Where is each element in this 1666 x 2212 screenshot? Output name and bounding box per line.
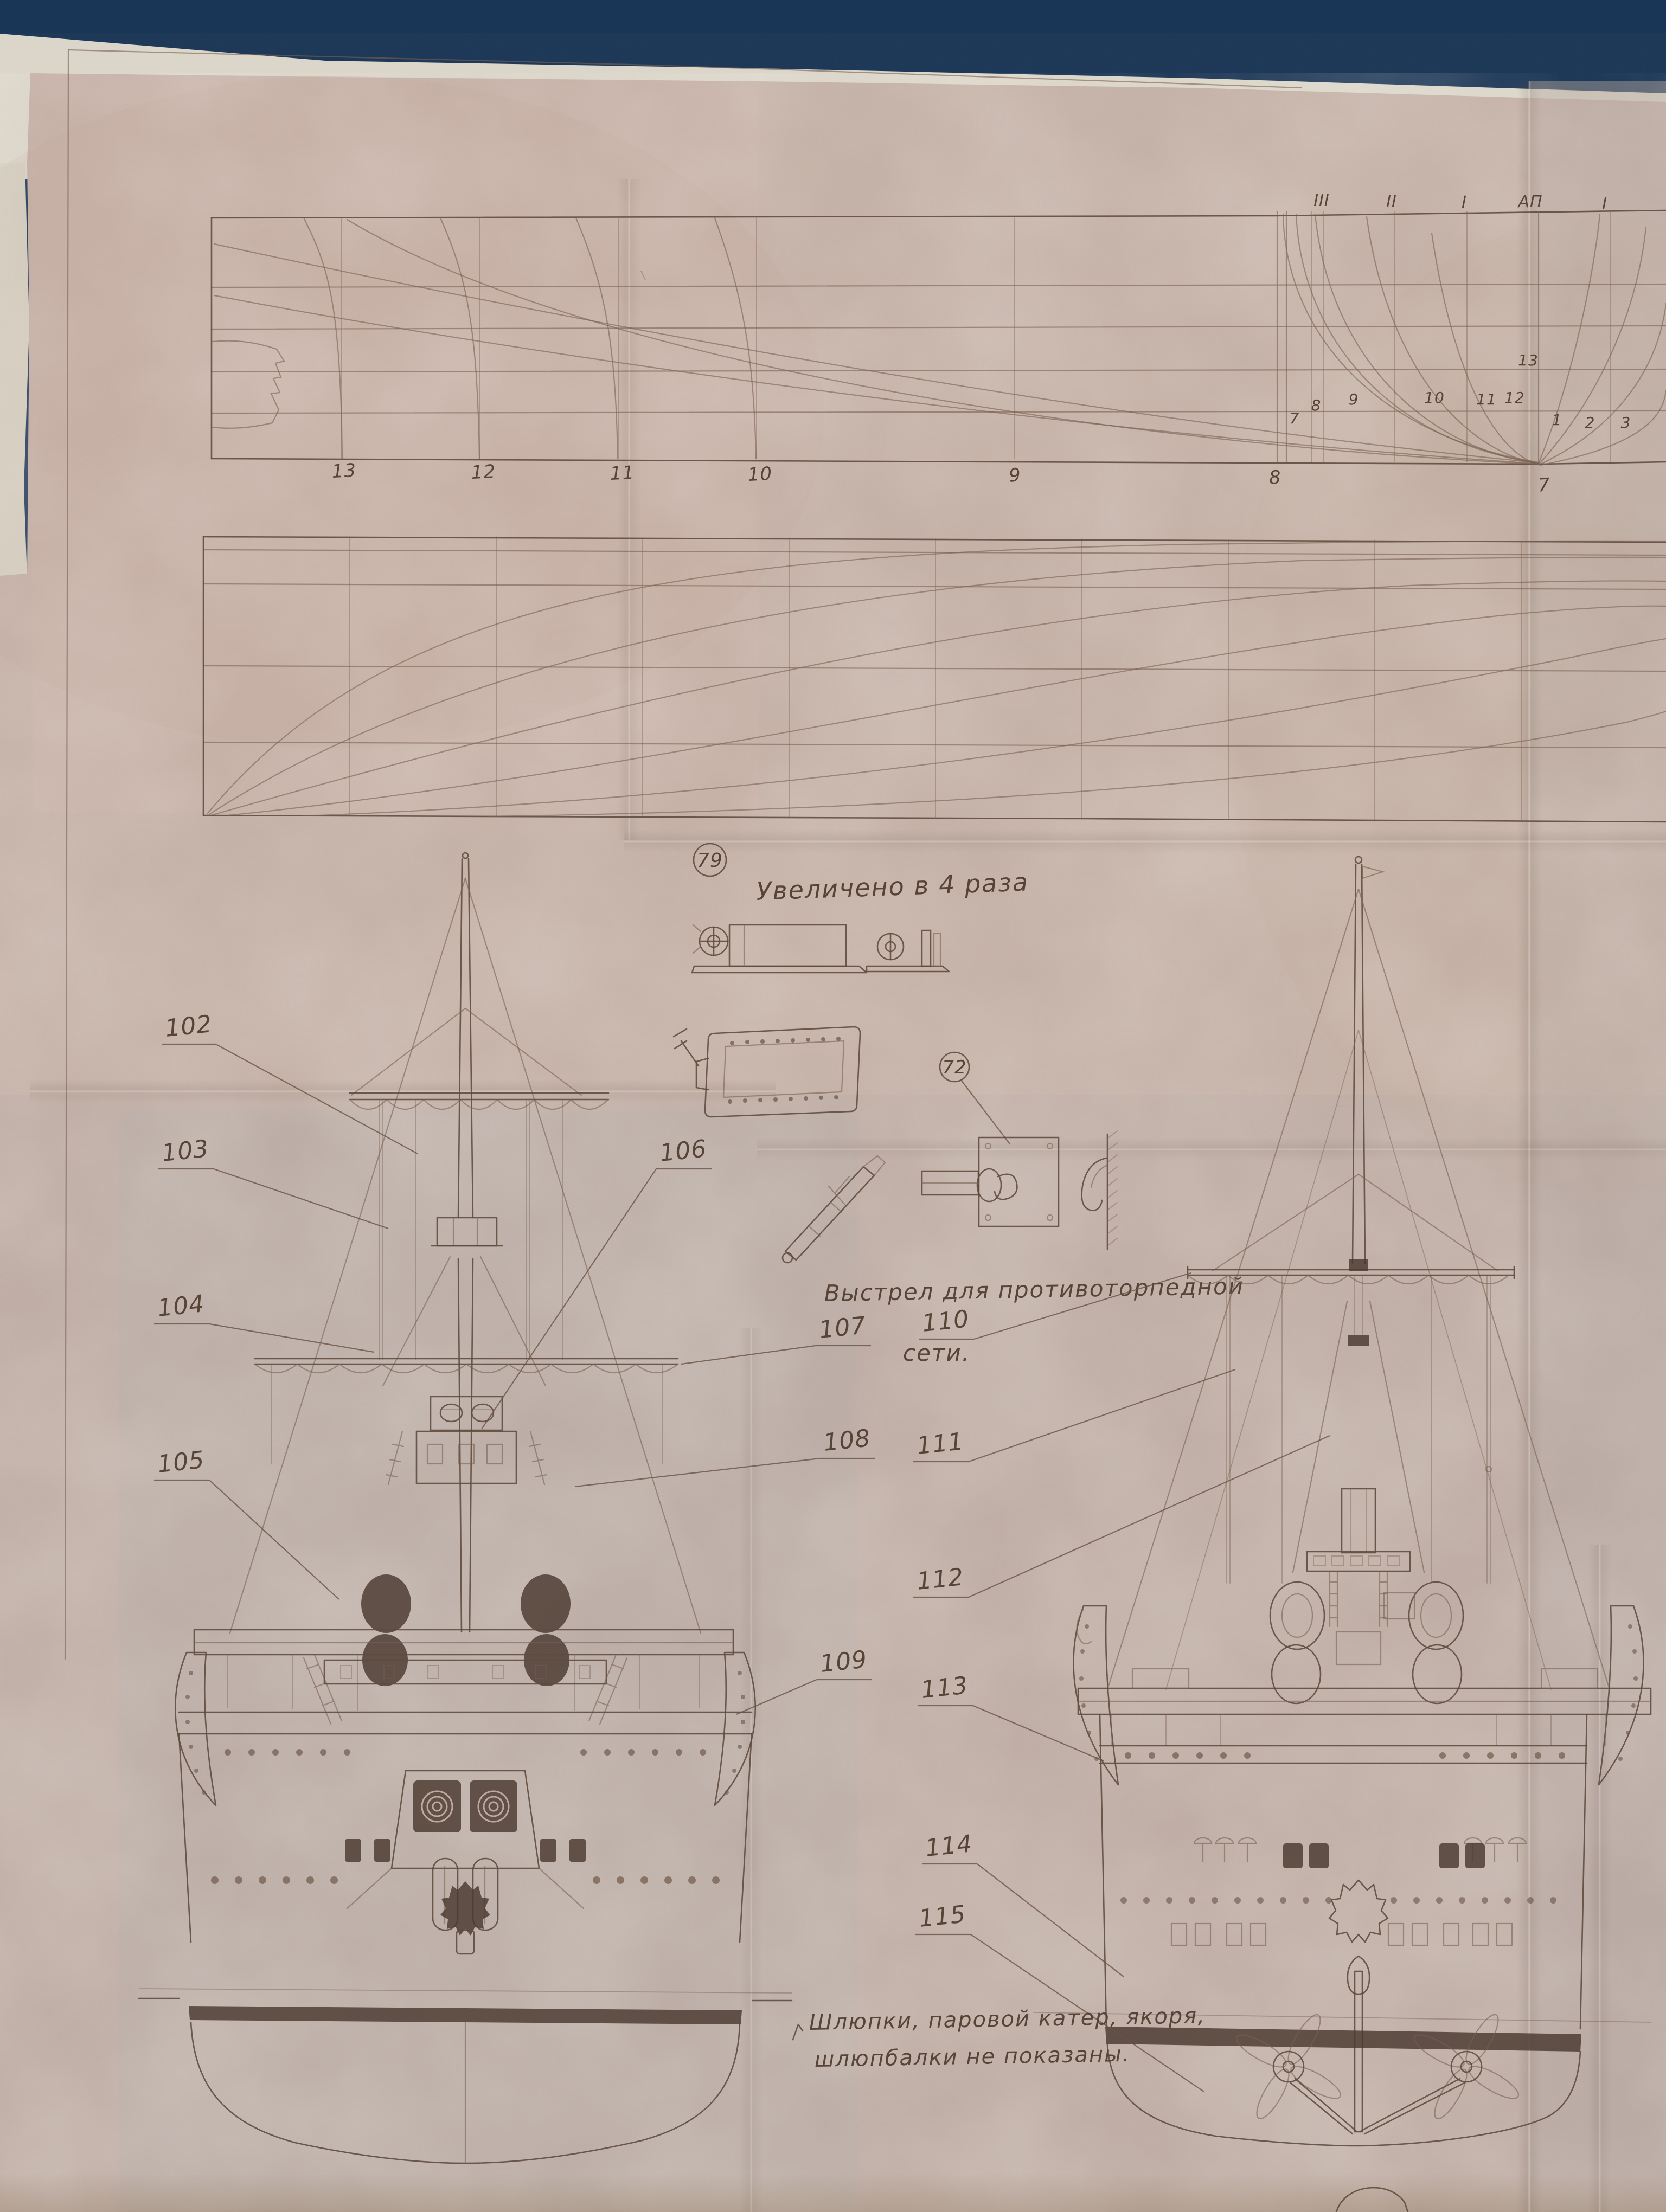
paper-sheet (0, 33, 1666, 2212)
station-label: 7 (1537, 474, 1551, 496)
callout-number: 107 (818, 1311, 868, 1344)
frame-label: 3 (1621, 414, 1631, 432)
frame-label: 7 (1290, 409, 1300, 427)
buttock-label: I (1462, 193, 1467, 212)
frame-label: 13 (1518, 351, 1539, 369)
callout-number: 113 (920, 1671, 970, 1704)
hawse-shield (470, 1780, 517, 1832)
buttock-label: II (1386, 192, 1397, 211)
boom-note-line2: сети. (903, 1340, 970, 1366)
station-label: 10 (747, 463, 773, 486)
frame-label: 2 (1585, 414, 1595, 432)
callout-number: 104 (156, 1290, 206, 1322)
ventilator-cowl (361, 1574, 411, 1633)
frame-label: 8 (1311, 396, 1322, 414)
callout-number: 112 (915, 1563, 965, 1596)
station-label: 11 (610, 462, 635, 485)
station-label: 9 (1008, 464, 1022, 486)
station-label: 13 (331, 460, 357, 483)
callout-number: 108 (822, 1424, 872, 1457)
ventilator-cowl (521, 1574, 571, 1633)
detail-72-number: 72 (942, 1057, 966, 1078)
callout-number: 114 (924, 1830, 974, 1862)
callout-number: 102 (164, 1010, 214, 1043)
frame-label: 11 (1476, 390, 1497, 408)
buttock-label: I (1602, 195, 1607, 214)
frame-label: 1 (1552, 411, 1562, 429)
callout-number: 105 (156, 1446, 206, 1478)
photographed-blueprint-sheet: III II I АП I 13 12 11 10 9 8 7 1 2 3 13… (0, 0, 1666, 2212)
callout-number: 115 (918, 1900, 967, 1933)
callout-number: 110 (921, 1305, 971, 1338)
station-label: 8 (1268, 466, 1282, 488)
callout-number: 111 (915, 1427, 965, 1460)
frame-label: 10 (1424, 389, 1445, 407)
callout-number: 109 (819, 1645, 869, 1678)
station-label: 12 (471, 461, 496, 484)
callout-number: 103 (161, 1135, 210, 1167)
callout-number: 106 (658, 1135, 708, 1167)
ship-plans-drawing: III II I АП I 13 12 11 10 9 8 7 1 2 3 13… (0, 0, 1666, 2212)
frame-label: 9 (1349, 390, 1359, 408)
frame-label: 12 (1504, 389, 1525, 407)
buttock-label: АП (1517, 192, 1542, 211)
buttock-label: III (1313, 191, 1330, 210)
hawse-shield (413, 1780, 461, 1832)
detail-79-number: 79 (697, 850, 723, 872)
